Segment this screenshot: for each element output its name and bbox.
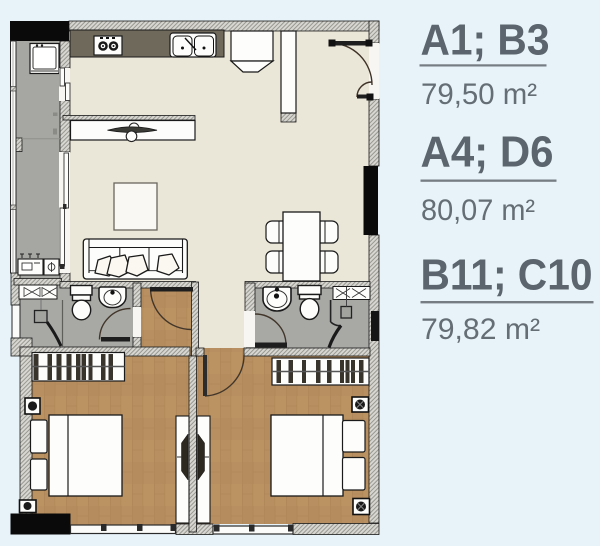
- svg-text:80,07 m²: 80,07 m²: [421, 194, 535, 227]
- svg-text:79,50 m²: 79,50 m²: [421, 78, 537, 111]
- svg-text:79,82 m²: 79,82 m²: [421, 313, 540, 346]
- svg-text:A4; D6: A4; D6: [421, 129, 554, 177]
- svg-text:B11; C10: B11; C10: [421, 252, 593, 300]
- svg-text:A1; B3: A1; B3: [421, 17, 550, 65]
